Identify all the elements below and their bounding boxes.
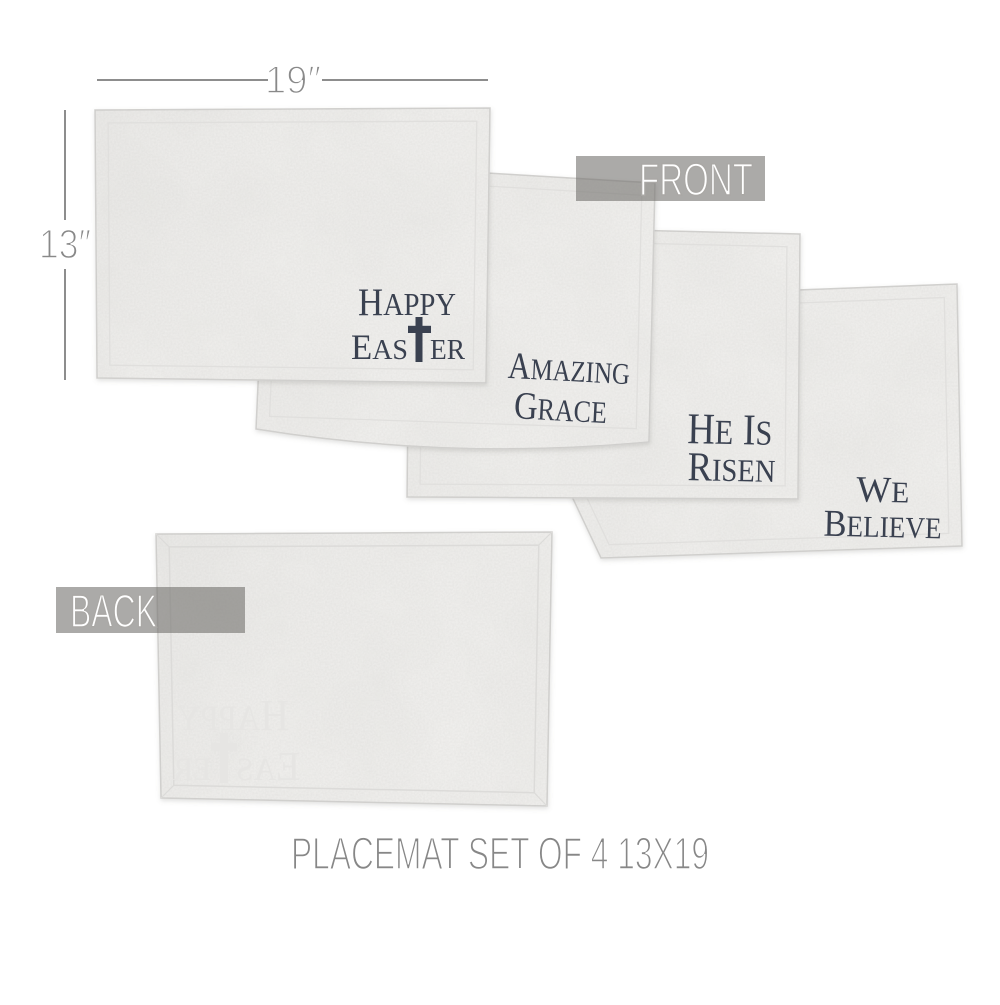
svg-text:19″: 19″ <box>265 59 321 102</box>
svg-text:FRONT: FRONT <box>639 154 753 205</box>
svg-text:HAPPY: HAPPY <box>177 691 289 740</box>
svg-text:PLACEMAT SET OF 4 13X19: PLACEMAT SET OF 4 13X19 <box>291 828 709 879</box>
svg-text:BACK: BACK <box>70 585 157 637</box>
svg-text:ER: ER <box>430 334 466 366</box>
svg-text:ER: ER <box>173 752 211 788</box>
svg-text:WE: WE <box>856 469 910 511</box>
svg-text:HAPPY: HAPPY <box>358 281 456 324</box>
svg-text:13″: 13″ <box>39 221 91 267</box>
